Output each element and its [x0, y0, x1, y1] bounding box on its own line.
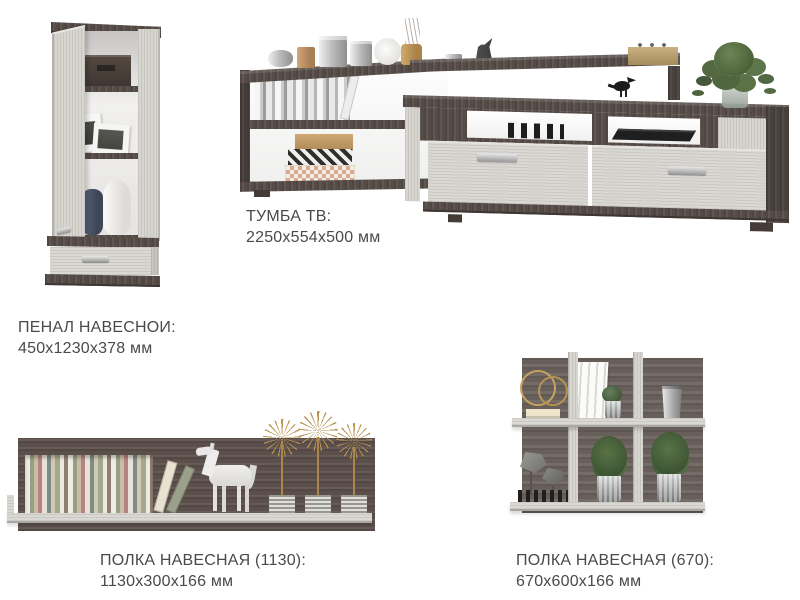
- books-row: [25, 455, 153, 513]
- tv-drawer-front: [428, 141, 588, 206]
- rings-base: [526, 409, 560, 418]
- caption-polka-1130: ПОЛКА НАВЕСНАЯ (1130): 1130х300х166 мм: [100, 550, 306, 592]
- bottom-shelf-board: [510, 502, 705, 511]
- tv-foot: [254, 190, 270, 197]
- tv-right-unit: [403, 95, 792, 237]
- gold-rings-decor: [520, 364, 574, 420]
- door-handle: [57, 226, 71, 234]
- storage-box: [85, 55, 131, 86]
- plant-foliage: [591, 436, 627, 478]
- tv-right-left-panel: [405, 107, 420, 201]
- bird-legs: [620, 90, 622, 97]
- penal-drawer-side: [151, 247, 159, 275]
- horizontal-vase: [268, 50, 293, 67]
- plant: [688, 42, 780, 114]
- casket-knobs: [635, 43, 671, 48]
- middle-shelf-board: [512, 418, 705, 427]
- plant-pot: [605, 401, 621, 418]
- caption-penal: ПЕНАЛ НАВЕСНОИ: 450х1230х378 мм: [18, 317, 176, 359]
- palm-head: [336, 423, 372, 459]
- tv-right-side-panel: [766, 107, 789, 224]
- palm-head: [298, 411, 338, 451]
- product-title: ПОЛКА НАВЕСНАЯ (1130):: [100, 550, 306, 571]
- tv-stand-image: [240, 8, 792, 226]
- penal-drawer-front: [50, 247, 151, 275]
- tv-right-end-panel: [718, 117, 766, 149]
- caption-polka-670: ПОЛКА НАВЕСНАЯ (670): 670х600х166 мм: [516, 550, 714, 592]
- product-title: ПЕНАЛ НАВЕСНОИ:: [18, 317, 176, 338]
- open-niche: [608, 116, 700, 144]
- tv-foot: [750, 222, 773, 232]
- product-title: ПОЛКА НАВЕСНАЯ (670):: [516, 550, 714, 571]
- zigzag-box: [288, 149, 352, 166]
- white-disk: [374, 38, 401, 65]
- product-title: ТУМБА ТВ:: [246, 206, 380, 227]
- canister: [319, 36, 347, 67]
- plant-pot: [722, 82, 748, 108]
- gold-palm-decor: [262, 415, 302, 517]
- white-vase: [103, 180, 131, 235]
- palm-base: [269, 495, 295, 515]
- gold-palm-decor: [334, 421, 374, 517]
- penal-side-panel: [138, 29, 160, 241]
- black-candles: [508, 123, 564, 139]
- drawer-handle: [668, 166, 706, 175]
- shelf-board: [7, 513, 372, 523]
- wall-shelf-670-image: [505, 350, 711, 520]
- shelf-support: [668, 66, 680, 100]
- palm-base: [341, 495, 367, 515]
- tv-left-side-panel: [240, 70, 250, 182]
- product-dimensions: 1130х300х166 мм: [100, 571, 306, 592]
- product-dimensions: 670х600х166 мм: [516, 571, 714, 592]
- plant-pot: [657, 474, 681, 502]
- plant-foliage: [714, 42, 754, 76]
- picture-frame: [92, 123, 130, 156]
- canister: [350, 41, 372, 66]
- penal-cabinet-image: [40, 14, 164, 294]
- caption-tumba-tv: ТУМБА ТВ: 2250х554х500 мм: [246, 206, 380, 248]
- keyboard: [612, 129, 696, 142]
- penal-bottom-cap: [45, 274, 160, 287]
- diffuser-sticks: [405, 18, 420, 45]
- tv-foot: [448, 214, 462, 222]
- crystal-decor: [518, 444, 574, 502]
- penal-shelf-1: [82, 86, 138, 92]
- box-handle-slot: [97, 65, 115, 71]
- product-dimensions: 2250х554х500 мм: [246, 227, 380, 248]
- horse-figurine: [195, 445, 267, 515]
- plant-foliage: [651, 432, 689, 475]
- bird-figurine: [610, 76, 638, 98]
- vertical-divider: [568, 352, 578, 502]
- copper-cup: [297, 47, 315, 68]
- gold-palm-decor: [298, 409, 338, 517]
- crystal: [520, 452, 547, 473]
- horse-body: [209, 465, 251, 486]
- bird-head: [627, 77, 636, 83]
- gold-casket: [628, 47, 678, 65]
- penal-shelf-2: [82, 153, 138, 159]
- product-dimensions: 450х1230х378 мм: [18, 338, 176, 359]
- palm-base: [305, 495, 331, 515]
- silver-cup: [661, 386, 683, 418]
- drawer-handle: [82, 256, 109, 262]
- penal-open-door: [52, 25, 85, 245]
- gold-box: [295, 134, 353, 150]
- vertical-divider: [633, 352, 643, 502]
- drawer-handle: [477, 153, 517, 162]
- open-niche: [467, 111, 592, 141]
- black-candle-row: [518, 490, 574, 502]
- crystal: [542, 468, 565, 485]
- tv-drawer-front: [592, 145, 766, 211]
- wall-shelf-1130-image: [7, 415, 375, 537]
- palm-head: [263, 419, 301, 457]
- catalog-page: ТУМБА ТВ: 2250х554х500 мм ПЕНАЛ НАВЕСНОИ…: [0, 0, 800, 600]
- blue-vase: [82, 189, 103, 235]
- gold-ring: [538, 376, 568, 406]
- plant-pot: [597, 476, 621, 502]
- horse-legs: [213, 483, 217, 511]
